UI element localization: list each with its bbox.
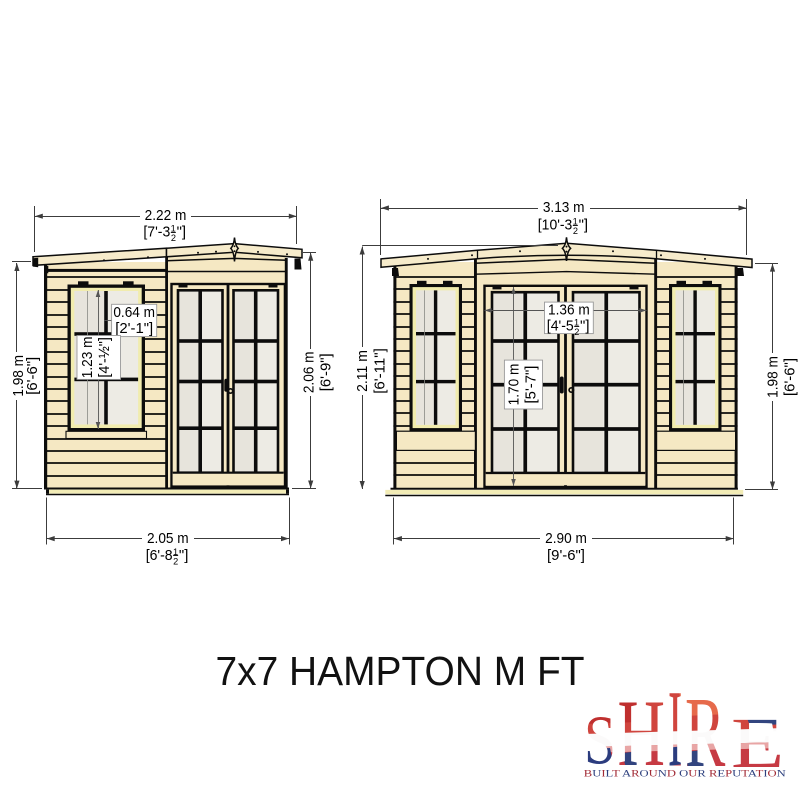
svg-text:[5'-7"]: [5'-7"] — [523, 366, 540, 404]
svg-text:2.11 m: 2.11 m — [354, 350, 371, 392]
svg-text:1.98 m: 1.98 m — [765, 356, 782, 398]
svg-text:BUILT AROUND OUR REPUTATION: BUILT AROUND OUR REPUTATION — [584, 770, 786, 780]
svg-text:2: 2 — [173, 556, 178, 566]
svg-text:0.64 m: 0.64 m — [113, 304, 155, 321]
svg-text:[10'-3: [10'-3 — [538, 216, 573, 233]
svg-text:1: 1 — [573, 216, 578, 226]
svg-text:"]: "] — [580, 318, 590, 335]
svg-text:"]: "] — [179, 547, 189, 564]
svg-text:[6'-8: [6'-8 — [146, 547, 173, 564]
svg-text:1.23 m: 1.23 m — [79, 337, 96, 379]
svg-text:[2'-1"]: [2'-1"] — [115, 320, 153, 337]
svg-text:7x7 HAMPTON M FT: 7x7 HAMPTON M FT — [216, 648, 585, 694]
svg-text:[9'-6"]: [9'-6"] — [547, 547, 585, 564]
svg-text:[4'-5: [4'-5 — [547, 318, 574, 335]
svg-text:2.22 m: 2.22 m — [145, 207, 187, 224]
svg-text:3.13 m: 3.13 m — [543, 199, 585, 216]
svg-text:[6'-6"]: [6'-6"] — [24, 357, 41, 395]
svg-text:"]: "] — [177, 224, 187, 241]
svg-text:"]: "] — [579, 216, 589, 233]
svg-text:2.05 m: 2.05 m — [147, 530, 189, 547]
svg-text:[6'-9"]: [6'-9"] — [318, 353, 335, 391]
svg-text:2.06 m: 2.06 m — [301, 351, 318, 393]
svg-text:2: 2 — [574, 327, 579, 337]
svg-text:[6'-11"]: [6'-11"] — [372, 348, 389, 394]
svg-text:2: 2 — [171, 233, 176, 243]
svg-text:1.36 m: 1.36 m — [548, 302, 590, 319]
svg-text:[6'-6"]: [6'-6"] — [782, 358, 799, 396]
svg-text:S: S — [584, 702, 616, 779]
svg-text:2.90 m: 2.90 m — [545, 530, 587, 547]
svg-text:2: 2 — [573, 226, 578, 236]
svg-text:[7'-3: [7'-3 — [143, 224, 170, 241]
svg-text:[4'-½"]: [4'-½"] — [96, 337, 113, 377]
svg-text:1.70 m: 1.70 m — [506, 364, 523, 406]
